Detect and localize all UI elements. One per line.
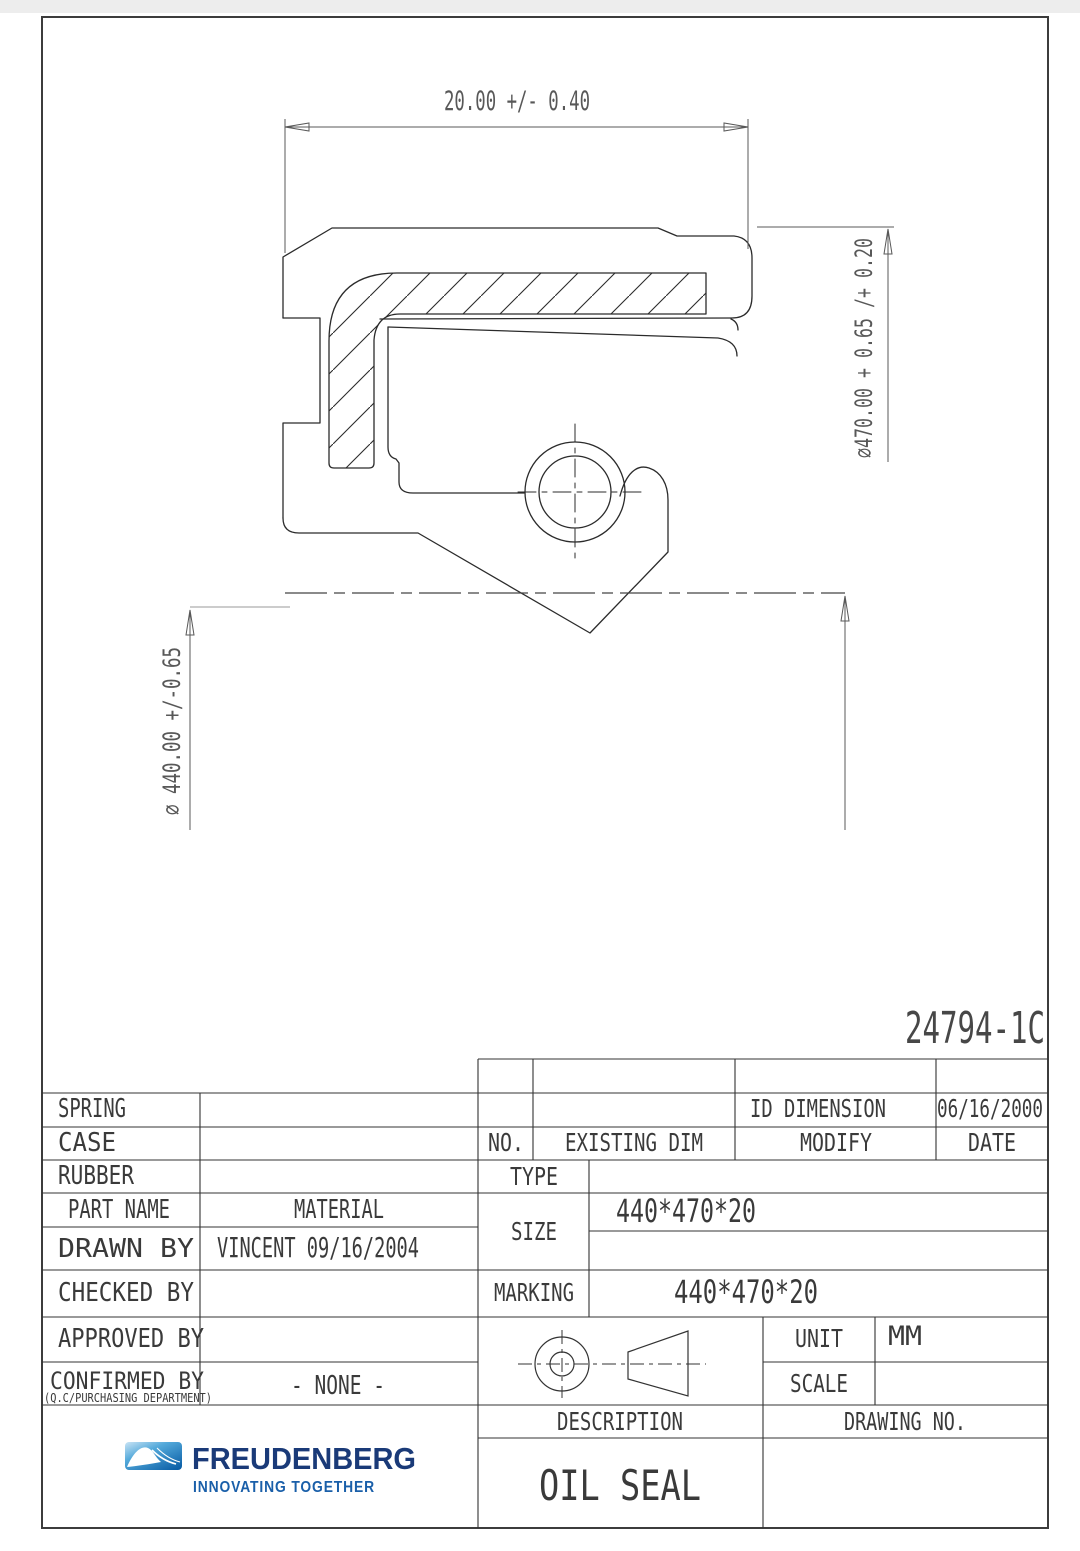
material-label: MATERIAL [294,1195,384,1225]
description-label: DESCRIPTION [557,1407,683,1436]
approved-by-label: APPROVED BY [58,1324,204,1354]
dimension-id-text: ⌀ 440.00 +/-0.65 [158,647,186,815]
marking-label: MARKING [494,1278,574,1307]
dimension-od-text: ⌀470.00 + 0.65 /+ 0.20 [850,238,878,458]
rev-existing-label: EXISTING DIM [565,1128,703,1157]
size-value: 440*470*20 [616,1192,756,1230]
sheet-number: 24794-1C [905,1003,1045,1054]
case-label: CASE [58,1128,116,1158]
rev-entry-modify: ID DIMENSION [750,1094,886,1123]
unit-label: UNIT [795,1324,843,1353]
logo-brand-text: FREUDENBERG [192,1441,416,1476]
drawing-no-label: DRAWING NO. [844,1407,966,1436]
type-label: TYPE [510,1162,558,1191]
rev-date-label: DATE [968,1128,1016,1157]
confirmed-by-value: - NONE - [291,1371,385,1401]
rev-modify-label: MODIFY [800,1128,872,1157]
logo-tagline-text: INNOVATING TOGETHER [193,1479,375,1496]
unit-value: MM [888,1321,922,1352]
dimension-width-text: 20.00 +/- 0.40 [444,86,590,117]
technical-drawing-svg: 20.00 +/- 0.40 ⌀470.00 + 0.65 /+ 0.20 ⌀ … [0,0,1080,1551]
rubber-label: RUBBER [58,1161,134,1191]
marking-value: 440*470*20 [674,1273,818,1311]
checked-by-label: CHECKED BY [58,1278,194,1308]
drawn-by-label: DRAWN BY [58,1234,194,1264]
rev-entry-date: 06/16/2000 [937,1094,1043,1123]
scale-label: SCALE [790,1369,848,1398]
top-gray-strip [0,0,1080,13]
size-label: SIZE [511,1217,557,1246]
drawn-by-value: VINCENT 09/16/2004 [217,1231,419,1264]
part-name-label: PART NAME [68,1195,170,1225]
confirmed-by-note: (Q.C/PURCHASING DEPARTMENT) [44,1391,212,1405]
description-value: OIL SEAL [539,1461,701,1510]
spring-label: SPRING [58,1094,126,1124]
rev-no-label: NO. [488,1128,524,1157]
drawing-sheet: 20.00 +/- 0.40 ⌀470.00 + 0.65 /+ 0.20 ⌀ … [0,0,1080,1551]
